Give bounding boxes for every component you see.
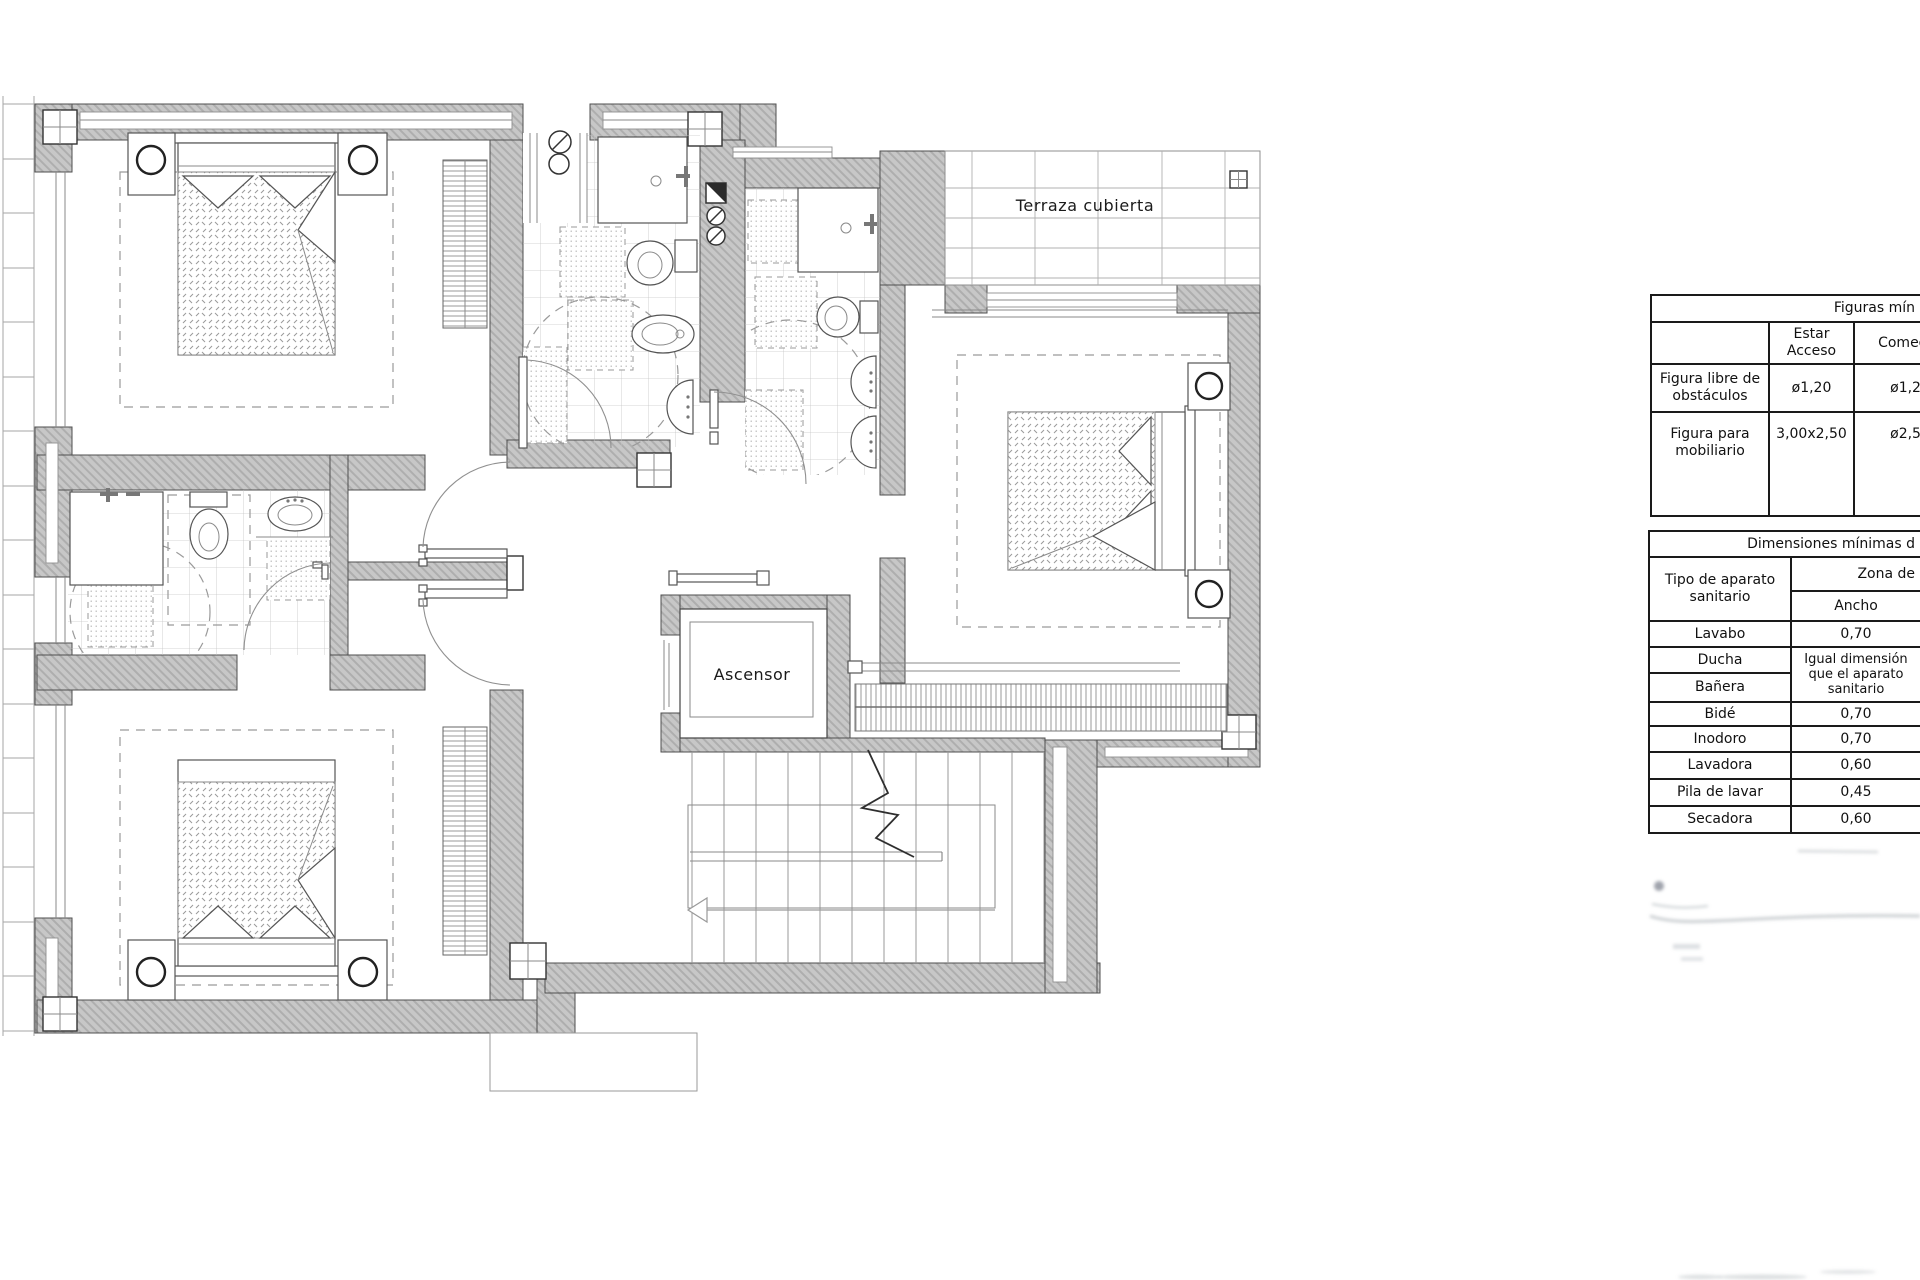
floor-plan-sheet: .w{fill:url(#hatch);stroke:#4f4f4f;strok… <box>0 0 1920 1280</box>
lamp-icon <box>137 146 165 174</box>
toilet <box>817 297 878 337</box>
row-label: Figura para mobiliario <box>1650 413 1770 517</box>
break-line <box>862 750 914 857</box>
direction-arrow-icon <box>688 898 995 922</box>
terrace-label: Terraza cubierta <box>1015 196 1155 215</box>
row-label: Bidé <box>1648 703 1792 727</box>
left-facade-walkway <box>3 96 34 1036</box>
row-label: Lavadora <box>1648 753 1792 780</box>
drain-grid-icon <box>1230 171 1247 188</box>
corridor-closet <box>848 661 1227 731</box>
row-label: Secadora <box>1648 807 1792 834</box>
cell-value: 0,60 <box>1792 807 1920 834</box>
row-label: Pila de lavar <box>1648 780 1792 807</box>
lamp-icon <box>1196 373 1222 399</box>
cell-value: ø1,20 <box>1770 365 1855 413</box>
cell-value: 0,70 <box>1792 703 1920 727</box>
cell-value: 0,45 <box>1792 780 1920 807</box>
cell-value: 3,00x2,50 <box>1770 413 1855 517</box>
door-corridor <box>669 571 769 585</box>
toilet <box>190 492 228 559</box>
lamp-icon <box>349 146 377 174</box>
cell-shared-value: Igual dimensión que el aparato sanitario <box>1792 648 1920 703</box>
row-label: Lavabo <box>1648 622 1792 648</box>
dimensions-zone-header: Zona de <box>1792 558 1920 592</box>
figures-table-corner-cell <box>1650 323 1770 365</box>
bedroom-bottom-left <box>120 727 487 1000</box>
floor-plan-drawing: .w{fill:url(#hatch);stroke:#4f4f4f;strok… <box>0 0 1920 1280</box>
row-label: Ducha <box>1648 648 1792 674</box>
row-label: Bañera <box>1648 674 1792 703</box>
terrace: Terraza cubierta <box>945 151 1260 285</box>
bidet <box>632 315 694 353</box>
wardrobe <box>443 160 487 328</box>
dimensions-table-title: Dimensiones mínimas d <box>1648 530 1920 558</box>
wardrobe <box>443 727 487 955</box>
door-hall-south <box>419 585 510 685</box>
figures-table-title: Figuras mín <box>1650 294 1920 323</box>
lamp-icon <box>1196 581 1222 607</box>
figures-col-comedor: Comedor <box>1855 323 1920 365</box>
cell-value: 0,70 <box>1792 622 1920 648</box>
shower <box>598 137 690 223</box>
row-label: Figura libre de obstáculos <box>1650 365 1770 413</box>
bedroom-top-left <box>120 133 487 407</box>
porch-outline <box>490 1033 697 1091</box>
column-marker-icon <box>43 110 77 144</box>
dimensions-type-header: Tipo de aparato sanitario <box>1648 558 1792 622</box>
cell-value: ø1,20 <box>1855 365 1920 413</box>
column-marker-icon <box>43 997 77 1031</box>
scan-smudges <box>1650 851 1920 1280</box>
dimensions-width-header: Ancho <box>1792 592 1920 622</box>
elevator-label: Ascensor <box>714 665 791 684</box>
cell-value: 0,70 <box>1792 727 1920 753</box>
figures-col-estar-acceso: Estar Acceso <box>1770 323 1855 365</box>
shaft-symbols-icon <box>706 183 726 245</box>
shower <box>70 488 163 585</box>
shower <box>798 188 878 272</box>
bedroom-right <box>957 355 1230 627</box>
stairs <box>688 750 1044 963</box>
cell-value: 0,60 <box>1792 753 1920 780</box>
row-label: Inodoro <box>1648 727 1792 753</box>
column-marker-icon <box>637 453 671 487</box>
door-hall-north <box>419 462 510 566</box>
lamp-icon <box>137 958 165 986</box>
cell-value: ø2,50 <box>1855 413 1920 517</box>
lamp-icon <box>349 958 377 986</box>
column-marker-icon <box>510 943 546 979</box>
elevator: Ascensor <box>664 609 827 738</box>
bathroom-1 <box>519 131 700 453</box>
bathroom-3 <box>68 488 333 682</box>
